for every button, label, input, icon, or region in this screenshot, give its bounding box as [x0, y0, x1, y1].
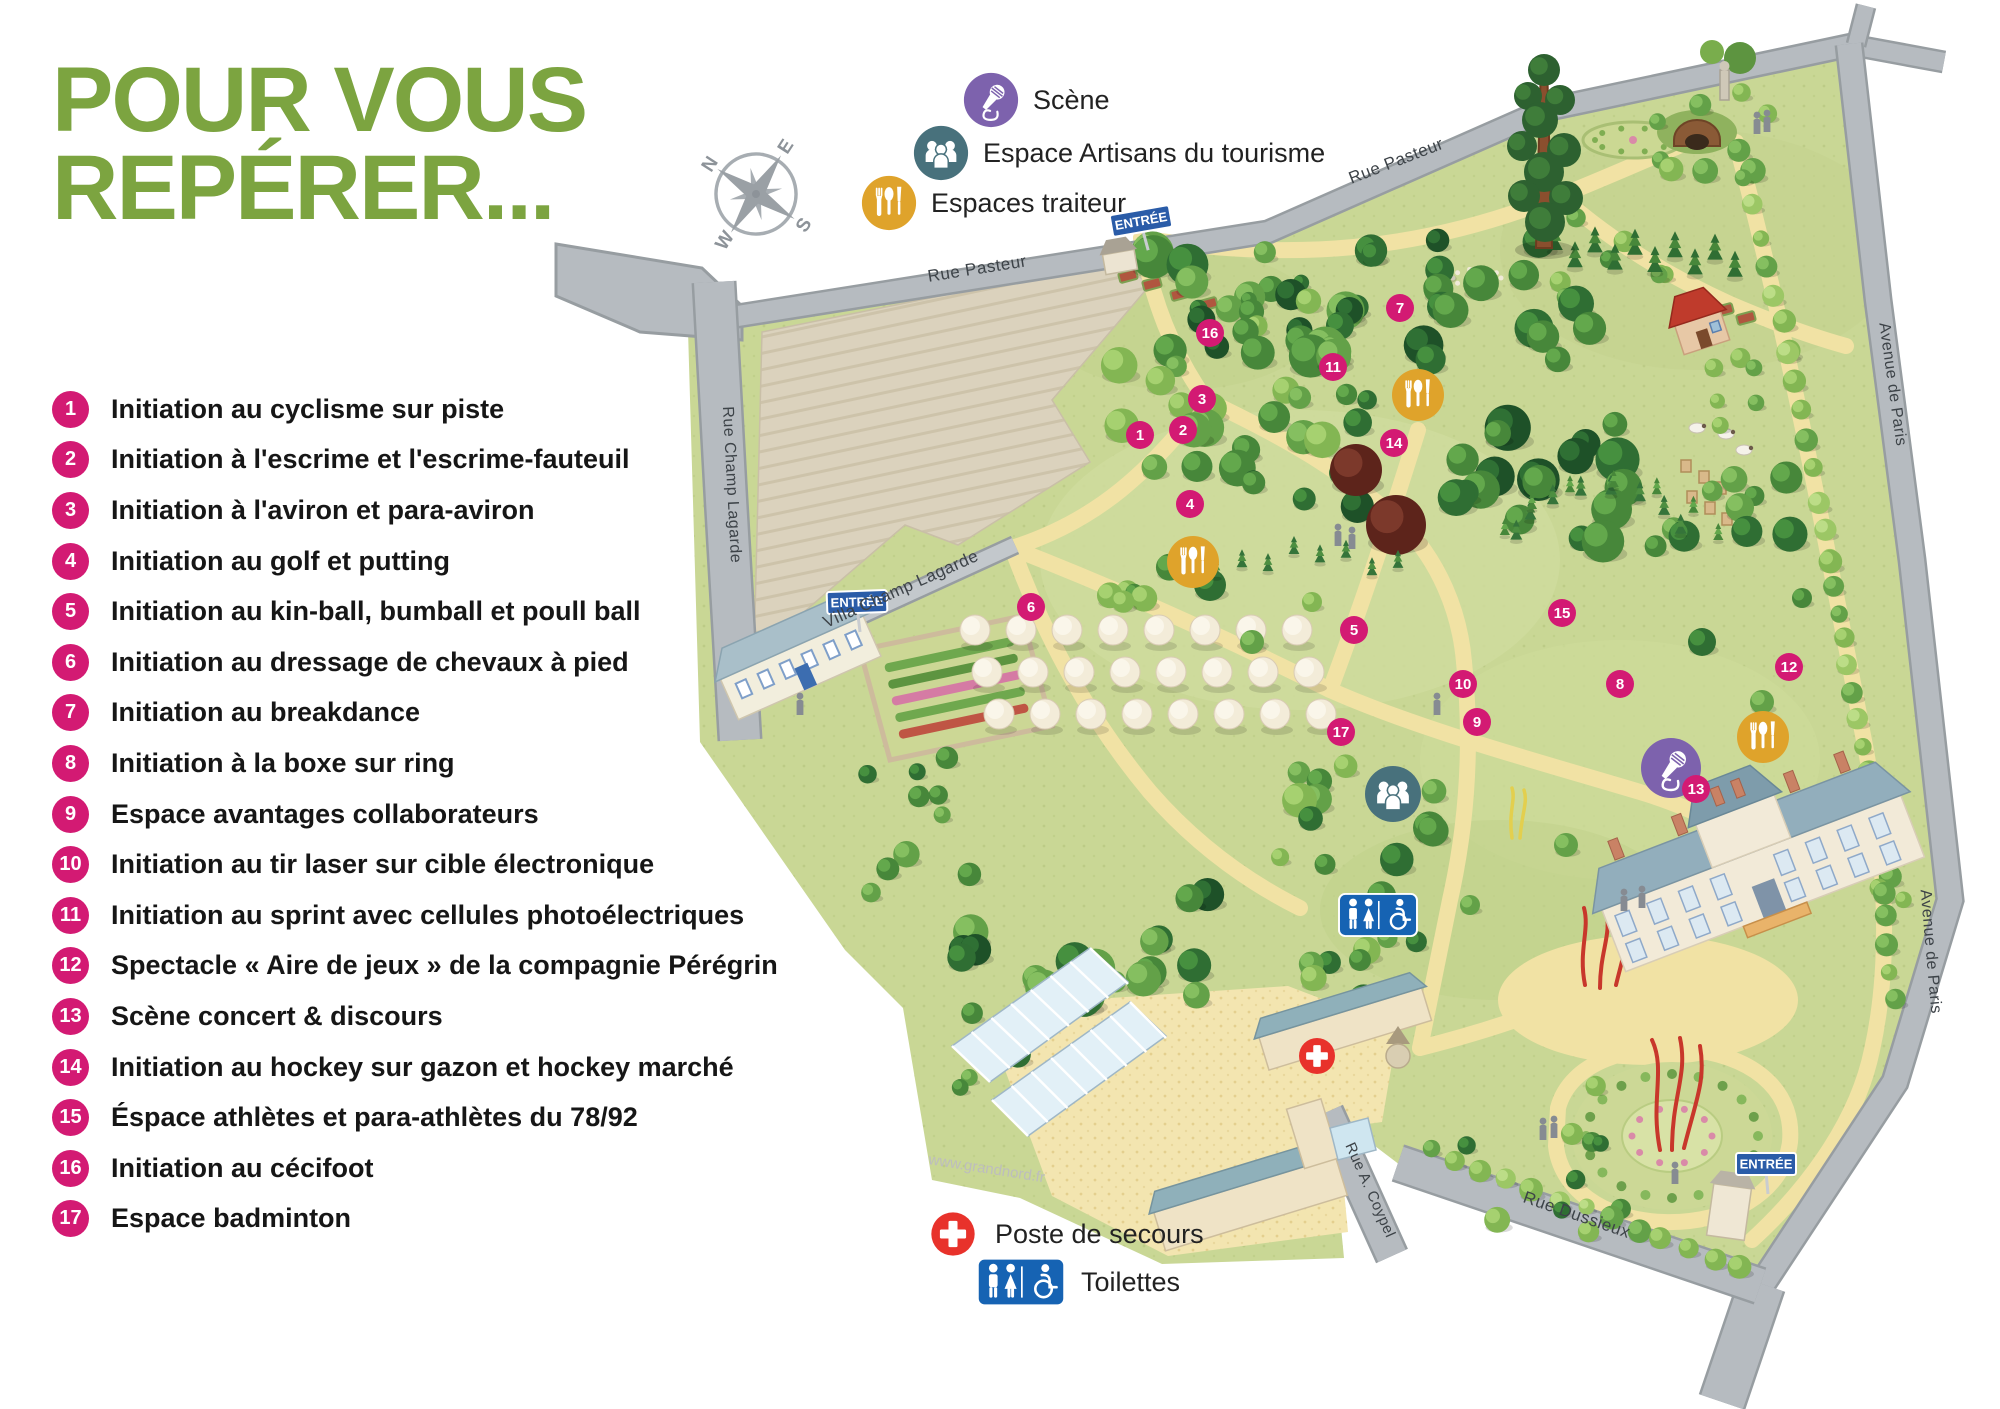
map-key-secours: Poste de secours: [925, 1206, 1204, 1262]
legend-item-label: Initiation au sprint avec cellules photo…: [111, 900, 744, 931]
legend-item-14: 14Initiation au hockey sur gazon et hock…: [52, 1042, 872, 1093]
svg-text:13: 13: [1688, 781, 1705, 798]
infographic-map-page: ENTRÉEENTRÉEENTRÉE 123456789101112131415…: [0, 0, 2000, 1409]
legend-item-label: Initiation au tir laser sur cible électr…: [111, 849, 654, 880]
page-title: POUR VOUS REPÉRER...: [52, 56, 652, 233]
svg-text:ENTRÉE: ENTRÉE: [1740, 1156, 1793, 1171]
compass-letter: S: [792, 214, 817, 236]
legend-item-number: 6: [52, 644, 89, 681]
svg-text:16: 16: [1202, 325, 1219, 342]
map-toilettes-toilets-sign-icon: [1339, 894, 1417, 936]
legend-item-number: 5: [52, 593, 89, 630]
svg-text:1: 1: [1136, 427, 1144, 444]
legend-item-label: Espace avantages collaborateurs: [111, 799, 539, 830]
legend-item-10: 10Initiation au tir laser sur cible élec…: [52, 839, 872, 890]
map-marker-3: 3: [1188, 385, 1216, 413]
legend-item-number: 2: [52, 441, 89, 478]
legend-item-label: Initiation à la boxe sur ring: [111, 748, 455, 779]
legend-item-17: 17Espace badminton: [52, 1194, 872, 1245]
legend-item-12: 12Spectacle « Aire de jeux » de la compa…: [52, 941, 872, 992]
map-marker-2: 2: [1169, 416, 1197, 444]
svg-text:9: 9: [1473, 714, 1481, 731]
map-key-toilettes: Toilettes: [975, 1256, 1180, 1308]
map-marker-1: 1: [1126, 421, 1154, 449]
legend-item-number: 8: [52, 745, 89, 782]
map-marker-14: 14: [1380, 429, 1408, 457]
map-key-label: Toilettes: [1081, 1267, 1180, 1298]
first-aid-cross-icon: [925, 1206, 981, 1262]
legend-item-label: Spectacle « Aire de jeux » de la compagn…: [111, 950, 778, 981]
legend-item-label: Initiation au golf et putting: [111, 546, 450, 577]
legend-item-label: Espace badminton: [111, 1203, 351, 1234]
map-marker-13: 13: [1682, 775, 1710, 803]
map-key-label: Espace Artisans du tourisme: [983, 138, 1325, 169]
legend-item-label: Initiation au kin-ball, bumball et poull…: [111, 596, 641, 627]
cutlery-icon: [861, 175, 917, 231]
map-marker-6: 6: [1017, 593, 1045, 621]
legend-item-16: 16Initiation au cécifoot: [52, 1143, 872, 1194]
legend-item-label: Initiation à l'aviron et para-aviron: [111, 495, 535, 526]
map-marker-17: 17: [1327, 718, 1355, 746]
legend-item-label: Initiation à l'escrime et l'escrime-faut…: [111, 444, 630, 475]
map-key-artisans: Espace Artisans du tourisme: [913, 125, 1325, 181]
legend-item-label: Initiation au hockey sur gazon et hockey…: [111, 1052, 734, 1083]
page-title-line1: POUR VOUS: [52, 56, 652, 144]
legend-item-number: 10: [52, 846, 89, 883]
legend-item-number: 1: [52, 391, 89, 428]
legend-item-5: 5Initiation au kin-ball, bumball et poul…: [52, 586, 872, 637]
people-icon: [913, 125, 969, 181]
page-title-line2: REPÉRER...: [52, 144, 652, 232]
map-marker-10: 10: [1449, 670, 1477, 698]
legend-item-11: 11Initiation au sprint avec cellules pho…: [52, 890, 872, 941]
map-marker-5: 5: [1340, 616, 1368, 644]
legend-item-number: 17: [52, 1200, 89, 1237]
svg-text:11: 11: [1325, 359, 1341, 376]
legend-item-6: 6Initiation au dressage de chevaux à pie…: [52, 637, 872, 688]
svg-text:7: 7: [1396, 300, 1404, 317]
map-key-label: Scène: [1033, 85, 1110, 116]
legend-item-15: 15Éspace athlètes et para-athlètes du 78…: [52, 1092, 872, 1143]
svg-text:15: 15: [1554, 605, 1571, 622]
map-key-traiteur: Espaces traiteur: [861, 175, 1126, 231]
compass-letter: W: [711, 227, 738, 254]
map-key-scene: Scène: [963, 72, 1110, 128]
legend-item-label: Initiation au dressage de chevaux à pied: [111, 647, 629, 678]
svg-text:6: 6: [1027, 599, 1035, 616]
legend-item-number: 4: [52, 543, 89, 580]
svg-text:14: 14: [1386, 435, 1403, 452]
map-marker-16: 16: [1196, 319, 1224, 347]
legend-item-2: 2Initiation à l'escrime et l'escrime-fau…: [52, 435, 872, 486]
legend-item-8: 8Initiation à la boxe sur ring: [52, 738, 872, 789]
legend-item-label: Éspace athlètes et para-athlètes du 78/9…: [111, 1102, 638, 1133]
legend-item-label: Scène concert & discours: [111, 1001, 443, 1032]
legend-item-13: 13Scène concert & discours: [52, 991, 872, 1042]
map-key-label: Espaces traiteur: [931, 188, 1126, 219]
map-marker-11: 11: [1319, 353, 1347, 381]
legend-item-number: 7: [52, 694, 89, 731]
legend-item-4: 4Initiation au golf et putting: [52, 536, 872, 587]
svg-text:4: 4: [1186, 496, 1195, 513]
svg-text:8: 8: [1616, 676, 1624, 693]
map-marker-8: 8: [1606, 670, 1634, 698]
legend-item-7: 7Initiation au breakdance: [52, 688, 872, 739]
compass-letter: N: [698, 153, 723, 176]
map-artisans-people-icon: [1365, 766, 1421, 822]
svg-text:12: 12: [1781, 659, 1798, 676]
legend-item-number: 9: [52, 796, 89, 833]
map-traiteur-cutlery-icon: [1167, 536, 1219, 588]
toilets-sign-icon: [975, 1256, 1067, 1308]
legend-item-label: Initiation au cyclisme sur piste: [111, 394, 504, 425]
map-marker-7: 7: [1386, 294, 1414, 322]
legend-item-number: 13: [52, 998, 89, 1035]
legend-item-1: 1Initiation au cyclisme sur piste: [52, 384, 872, 435]
legend-item-label: Initiation au breakdance: [111, 697, 420, 728]
legend-item-number: 15: [52, 1099, 89, 1136]
map-key-label: Poste de secours: [995, 1219, 1204, 1250]
map-marker-9: 9: [1463, 708, 1491, 736]
legend-item-9: 9Espace avantages collaborateurs: [52, 789, 872, 840]
svg-text:3: 3: [1198, 391, 1206, 408]
legend-item-number: 11: [52, 897, 89, 934]
legend-item-number: 16: [52, 1150, 89, 1187]
map-traiteur-cutlery-icon: [1392, 369, 1444, 421]
map-marker-12: 12: [1775, 653, 1803, 681]
legend-list: 1Initiation au cyclisme sur piste2Initia…: [52, 384, 872, 1244]
svg-text:2: 2: [1179, 422, 1187, 439]
svg-text:10: 10: [1455, 676, 1472, 693]
legend-item-3: 3Initiation à l'aviron et para-aviron: [52, 485, 872, 536]
legend-item-label: Initiation au cécifoot: [111, 1153, 374, 1184]
map-secours-first-aid-cross-icon: [1299, 1038, 1335, 1074]
microphone-icon: [963, 72, 1019, 128]
map-traiteur-cutlery-icon: [1737, 711, 1789, 763]
svg-text:5: 5: [1350, 622, 1358, 639]
map-marker-4: 4: [1176, 490, 1204, 518]
legend-item-number: 3: [52, 492, 89, 529]
compass-rose-icon: NESW: [666, 106, 847, 285]
map-marker-15: 15: [1548, 599, 1576, 627]
compass-letter: E: [774, 136, 799, 158]
legend-item-number: 14: [52, 1049, 89, 1086]
legend-item-number: 12: [52, 947, 89, 984]
svg-text:17: 17: [1333, 724, 1350, 741]
